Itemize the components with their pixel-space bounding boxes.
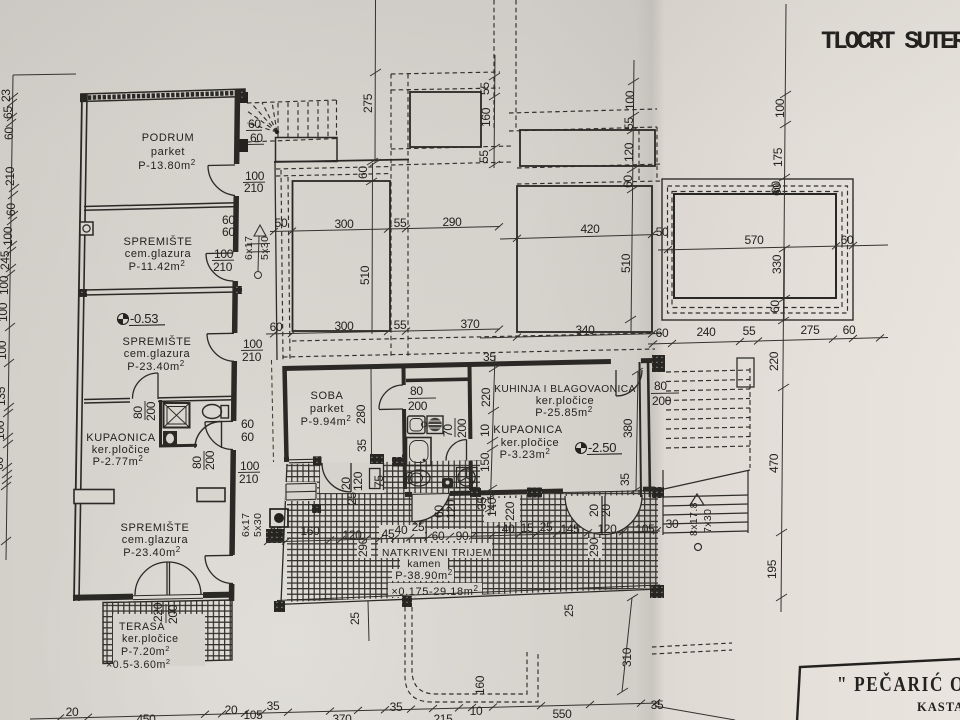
svg-text:380: 380	[621, 418, 635, 438]
svg-text:45: 45	[382, 527, 395, 541]
svg-text:120: 120	[444, 499, 458, 519]
svg-text:210: 210	[213, 260, 233, 274]
svg-text:370: 370	[460, 317, 480, 331]
svg-text:5x30: 5x30	[259, 236, 271, 260]
svg-text:210: 210	[244, 181, 264, 195]
svg-text:35: 35	[355, 439, 369, 452]
svg-text:35: 35	[618, 473, 632, 486]
svg-text:175: 175	[771, 147, 785, 167]
svg-text:145: 145	[560, 522, 580, 536]
svg-text:100: 100	[0, 420, 7, 440]
svg-text:470: 470	[767, 453, 781, 473]
svg-text:6x17: 6x17	[243, 236, 255, 260]
svg-text:80: 80	[654, 379, 667, 393]
svg-text:200: 200	[166, 604, 180, 624]
svg-text:275: 275	[800, 323, 820, 337]
svg-text:220: 220	[479, 387, 493, 407]
svg-text:210: 210	[239, 472, 259, 486]
svg-text:10: 10	[478, 424, 492, 437]
svg-text:60: 60	[841, 233, 854, 247]
svg-text:35: 35	[267, 699, 280, 713]
svg-text:340: 340	[575, 323, 595, 337]
svg-text:10: 10	[470, 704, 483, 718]
svg-text:P-7.20m2: P-7.20m2	[121, 644, 170, 658]
svg-text:215: 215	[433, 712, 453, 720]
svg-text:100: 100	[623, 90, 637, 110]
svg-text:25: 25	[540, 520, 553, 534]
svg-text:7x30: 7x30	[702, 509, 714, 533]
svg-text:P-25.85m2: P-25.85m2	[535, 405, 593, 419]
svg-text:PODRUM: PODRUM	[142, 132, 195, 144]
svg-text:23: 23	[0, 89, 13, 102]
svg-text:55: 55	[478, 82, 492, 95]
svg-text:550: 550	[552, 707, 572, 720]
svg-text:120: 120	[597, 522, 617, 536]
svg-text:330: 330	[770, 254, 784, 274]
svg-text:310: 310	[620, 647, 634, 667]
svg-text:200: 200	[203, 450, 217, 470]
svg-text:160: 160	[479, 107, 493, 127]
svg-text:80: 80	[131, 406, 145, 419]
svg-text:100: 100	[773, 98, 787, 118]
svg-text:280: 280	[354, 404, 368, 424]
svg-text:70: 70	[441, 424, 455, 437]
svg-text:200: 200	[455, 418, 469, 438]
svg-text:parket: parket	[151, 146, 185, 158]
svg-text:210: 210	[242, 350, 262, 364]
svg-text:195: 195	[765, 559, 779, 579]
svg-text:25: 25	[348, 612, 362, 625]
svg-text:135: 135	[0, 386, 8, 406]
svg-text:60: 60	[769, 181, 783, 194]
svg-text:20: 20	[599, 504, 613, 517]
svg-text:60: 60	[356, 166, 370, 179]
svg-text:100: 100	[0, 340, 9, 360]
svg-text:65: 65	[1, 106, 15, 119]
svg-text:220: 220	[503, 501, 517, 521]
svg-text:55: 55	[622, 117, 636, 130]
svg-text:75: 75	[372, 475, 386, 488]
svg-text:60: 60	[270, 320, 283, 334]
svg-text:200: 200	[652, 394, 672, 408]
svg-text:290: 290	[442, 215, 462, 229]
svg-text:140: 140	[495, 522, 515, 536]
svg-text:35: 35	[270, 525, 283, 539]
svg-text:100: 100	[0, 302, 10, 322]
svg-text:25: 25	[345, 492, 359, 505]
svg-text:60: 60	[768, 300, 782, 313]
svg-text:×0.5-3.60m2: ×0.5-3.60m2	[106, 657, 171, 671]
svg-text:×0.175-29.18m2: ×0.175-29.18m2	[391, 584, 478, 598]
svg-text:50: 50	[275, 216, 288, 230]
svg-text:200: 200	[144, 401, 158, 421]
svg-text:90: 90	[456, 529, 469, 543]
svg-text:55: 55	[477, 150, 491, 163]
svg-text:30: 30	[666, 517, 679, 531]
svg-text:60: 60	[241, 417, 254, 431]
svg-text:P-23.40m2: P-23.40m2	[127, 359, 185, 373]
svg-text:300: 300	[334, 217, 354, 231]
svg-text:160: 160	[300, 524, 320, 538]
svg-text:ker.pločice: ker.pločice	[122, 633, 179, 645]
svg-text:200: 200	[408, 399, 428, 413]
svg-text:SPREMIŠTE: SPREMIŠTE	[121, 521, 190, 534]
svg-text:60: 60	[621, 175, 635, 188]
svg-text:60: 60	[656, 326, 669, 340]
svg-text:55: 55	[743, 324, 756, 338]
svg-text:60: 60	[843, 323, 856, 337]
svg-text:20: 20	[66, 705, 79, 719]
svg-text:P-13.80m2: P-13.80m2	[138, 158, 196, 172]
svg-text:KUPAONICA: KUPAONICA	[86, 432, 155, 444]
svg-text:60: 60	[432, 529, 445, 543]
svg-text:35: 35	[390, 700, 403, 714]
svg-text:120: 120	[622, 142, 636, 162]
svg-text:100: 100	[0, 275, 11, 295]
svg-text:25: 25	[562, 604, 576, 617]
svg-text:50: 50	[656, 225, 669, 239]
svg-text:210: 210	[3, 166, 17, 186]
svg-text:220: 220	[151, 602, 165, 622]
svg-text:parket: parket	[310, 403, 344, 415]
svg-text:-2.50: -2.50	[588, 440, 616, 455]
svg-text:80: 80	[410, 384, 423, 398]
svg-text:KASTAV: KASTAV	[917, 700, 960, 714]
svg-text:40: 40	[395, 523, 408, 537]
svg-text:kamen: kamen	[407, 558, 441, 570]
svg-text:140: 140	[485, 497, 499, 517]
svg-text:60: 60	[241, 430, 254, 444]
svg-text:120: 120	[351, 471, 365, 491]
svg-text:80: 80	[190, 456, 204, 469]
svg-text:420: 420	[580, 222, 600, 236]
svg-text:60: 60	[222, 225, 235, 239]
svg-text:60: 60	[2, 127, 16, 140]
svg-text:P-38.90m2: P-38.90m2	[395, 568, 453, 582]
svg-text:8x17.8: 8x17.8	[688, 502, 700, 536]
svg-text:55: 55	[394, 216, 407, 230]
svg-text:160: 160	[473, 675, 487, 695]
svg-text:510: 510	[619, 253, 633, 273]
svg-text:60: 60	[4, 203, 18, 216]
svg-text:290: 290	[587, 537, 601, 557]
svg-text:" PEČARIĆ O: " PEČARIĆ O	[837, 672, 960, 696]
svg-text:150: 150	[478, 452, 492, 472]
svg-text:20: 20	[225, 703, 238, 717]
svg-text:P-23.40m2: P-23.40m2	[123, 545, 181, 559]
svg-text:60: 60	[248, 117, 261, 131]
svg-text:300: 300	[334, 319, 354, 333]
svg-text:290: 290	[356, 537, 370, 557]
svg-text:6x17: 6x17	[240, 513, 252, 537]
svg-text:55: 55	[394, 318, 407, 332]
svg-text:P-9.94m2: P-9.94m2	[301, 414, 352, 428]
svg-text:ker.pločice: ker.pločice	[501, 437, 560, 449]
svg-text:SPREMIŠTE: SPREMIŠTE	[124, 235, 193, 248]
svg-text:5x30: 5x30	[252, 513, 264, 537]
svg-text:P-2.77m2: P-2.77m2	[93, 454, 144, 468]
svg-text:TLOCRT SUTER: TLOCRT SUTER	[821, 27, 960, 56]
svg-text:P-11.42m2: P-11.42m2	[129, 259, 186, 273]
svg-text:P-3.23m2: P-3.23m2	[500, 447, 551, 461]
svg-text:35: 35	[651, 698, 664, 712]
svg-text:SOBA: SOBA	[311, 390, 344, 402]
svg-text:25: 25	[412, 520, 425, 534]
svg-text:105: 105	[635, 522, 655, 536]
svg-text:105: 105	[243, 708, 263, 720]
svg-text:ker.pločice: ker.pločice	[536, 395, 595, 407]
svg-text:100: 100	[243, 337, 263, 351]
svg-text:100: 100	[214, 247, 234, 261]
svg-text:240: 240	[696, 325, 716, 339]
svg-text:KUHINJA I BLAGOVAONICA: KUHINJA I BLAGOVAONICA	[494, 384, 636, 395]
svg-text:-0.53: -0.53	[130, 311, 158, 326]
svg-text:35: 35	[483, 350, 496, 364]
svg-text:60: 60	[0, 457, 6, 470]
svg-text:510: 510	[358, 265, 372, 285]
svg-text:220: 220	[767, 351, 781, 371]
svg-text:570: 570	[744, 233, 764, 247]
svg-text:100: 100	[240, 459, 260, 473]
svg-text:KUPAONICA: KUPAONICA	[493, 424, 562, 436]
svg-text:15: 15	[521, 521, 534, 535]
svg-text:450: 450	[136, 712, 156, 720]
svg-text:370: 370	[332, 712, 352, 720]
svg-text:60: 60	[250, 131, 263, 145]
svg-text:100: 100	[1, 226, 15, 246]
svg-text:275: 275	[361, 93, 375, 113]
svg-text:SPREMIŠTE: SPREMIŠTE	[123, 335, 192, 348]
svg-text:245: 245	[0, 250, 12, 270]
